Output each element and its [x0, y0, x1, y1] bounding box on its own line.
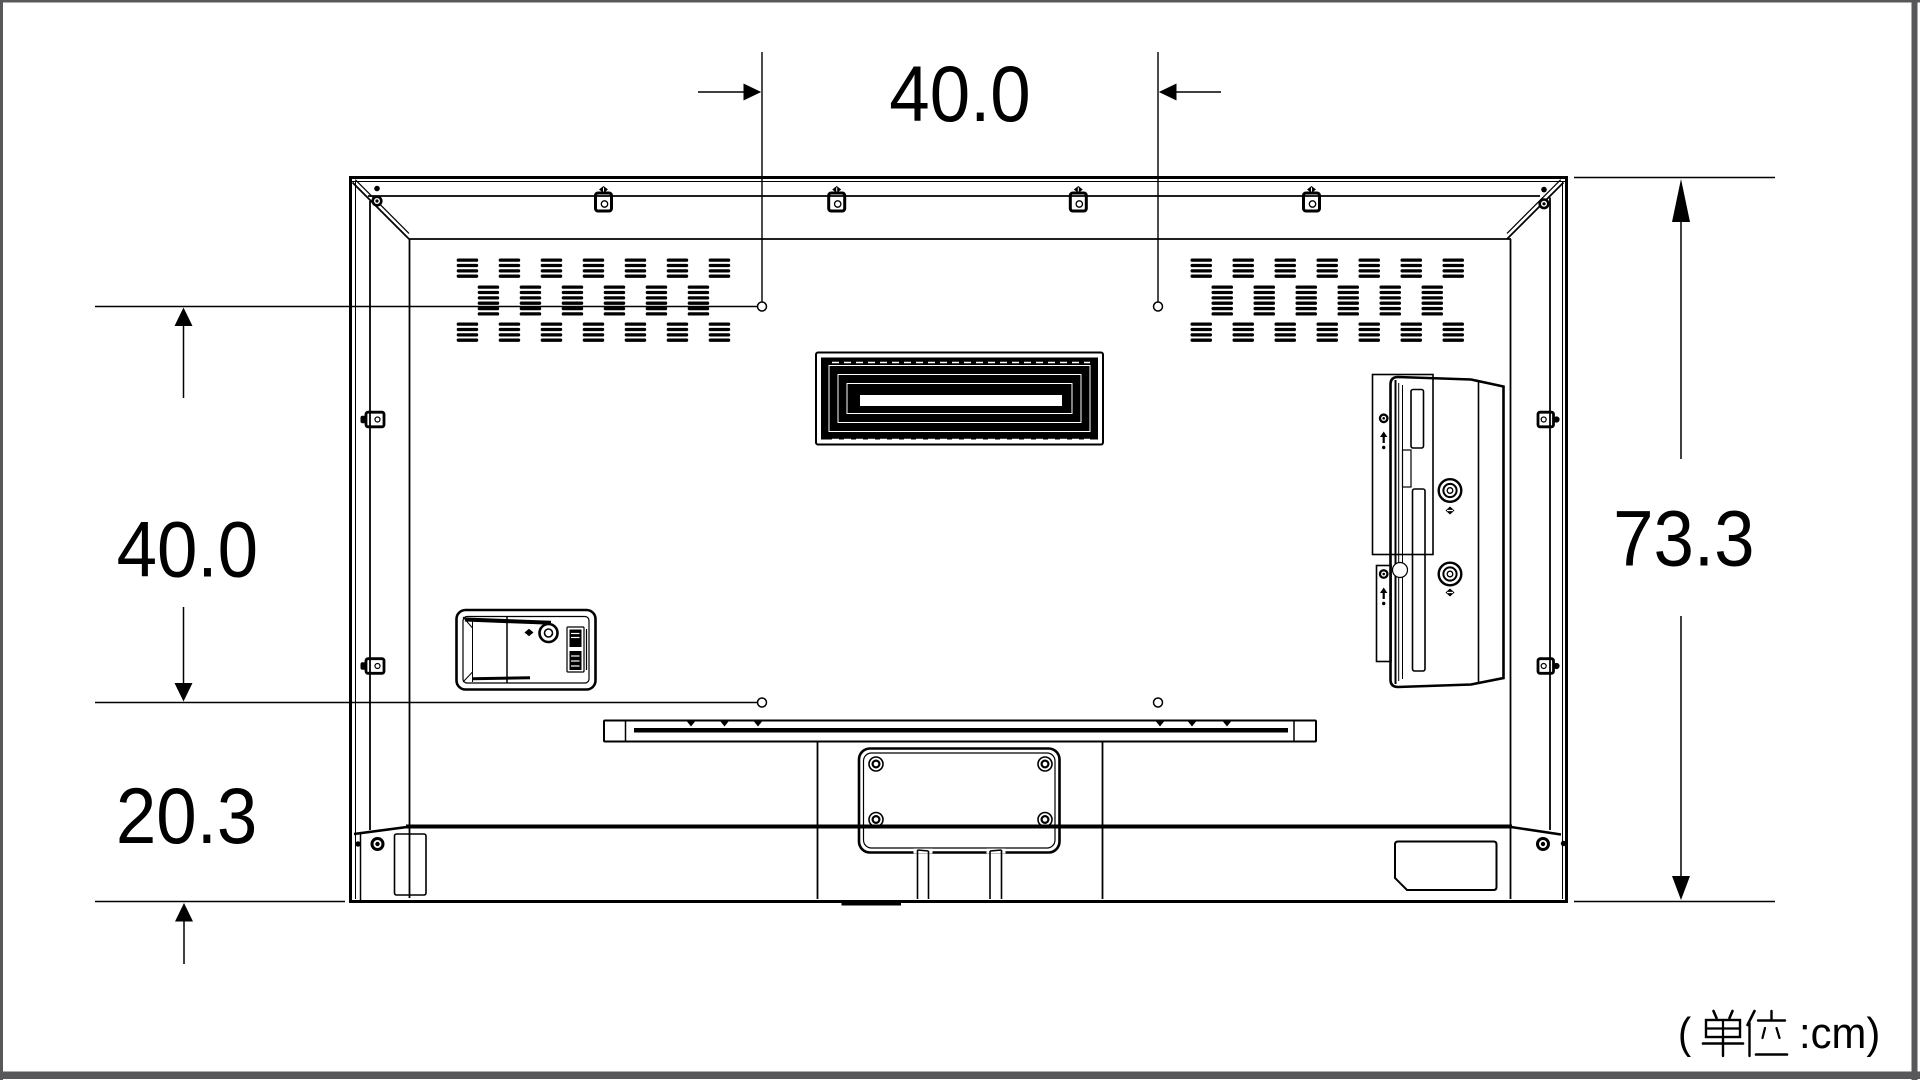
svg-text:(: ( [1678, 1008, 1691, 1057]
svg-text:73.3: 73.3 [1613, 495, 1754, 583]
svg-text:20.3: 20.3 [116, 772, 257, 860]
svg-text:40.0: 40.0 [117, 506, 258, 594]
svg-text::cm): :cm) [1799, 1009, 1880, 1058]
svg-text:40.0: 40.0 [889, 50, 1030, 138]
